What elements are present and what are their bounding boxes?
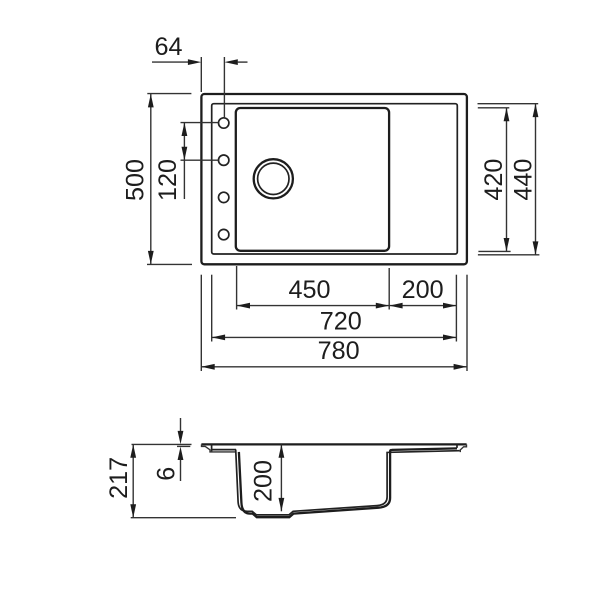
svg-text:720: 720 xyxy=(320,308,362,336)
svg-text:780: 780 xyxy=(318,337,360,365)
svg-text:500: 500 xyxy=(122,159,150,201)
svg-text:200: 200 xyxy=(402,276,444,304)
svg-text:440: 440 xyxy=(510,159,538,201)
svg-text:200: 200 xyxy=(249,460,277,502)
svg-text:120: 120 xyxy=(154,159,182,201)
svg-text:420: 420 xyxy=(480,159,508,201)
svg-text:450: 450 xyxy=(288,276,330,304)
svg-text:6: 6 xyxy=(153,467,181,481)
svg-text:217: 217 xyxy=(105,457,133,499)
svg-text:64: 64 xyxy=(154,33,182,61)
